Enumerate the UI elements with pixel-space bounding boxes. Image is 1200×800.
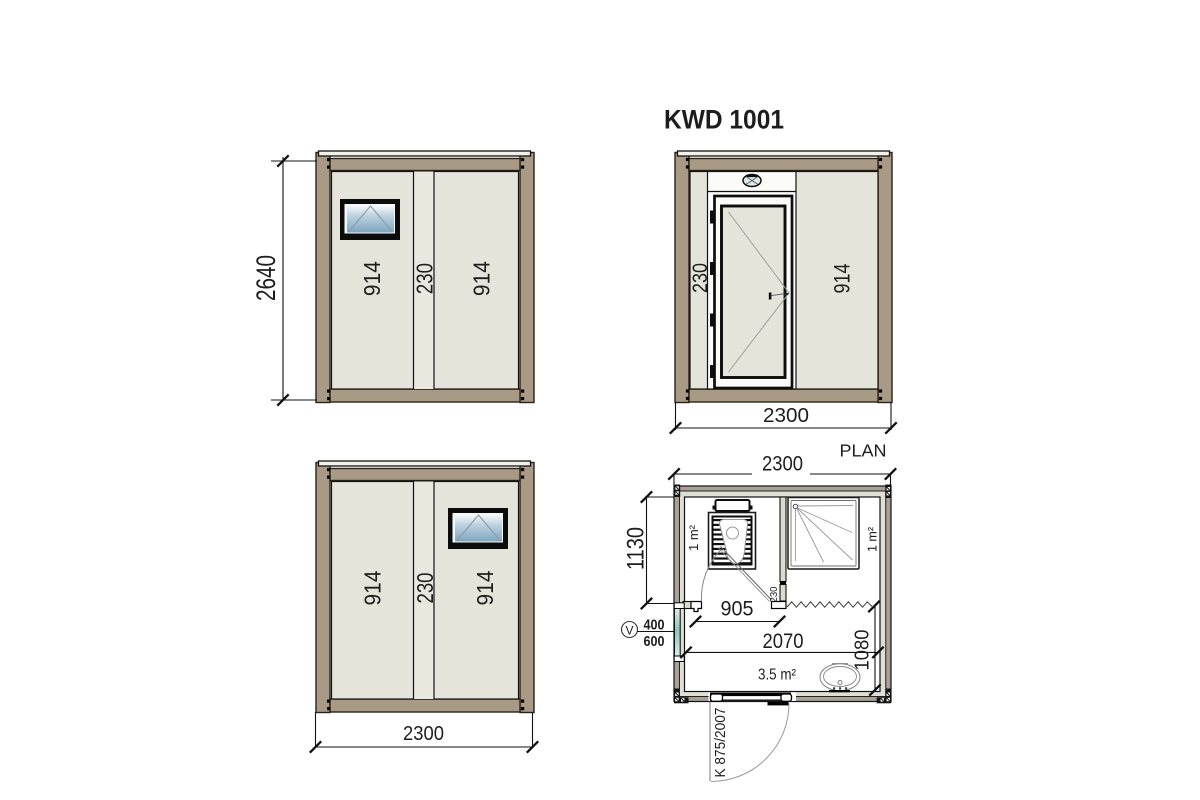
svg-text:230: 230 bbox=[412, 573, 438, 604]
svg-text:230: 230 bbox=[768, 586, 780, 602]
svg-text:905: 905 bbox=[721, 598, 754, 621]
svg-text:1130: 1130 bbox=[622, 527, 649, 570]
svg-text:V: V bbox=[625, 624, 633, 638]
svg-text:2070: 2070 bbox=[763, 630, 804, 653]
svg-text:K 875/2007: K 875/2007 bbox=[712, 708, 729, 778]
svg-text:2300: 2300 bbox=[762, 453, 803, 476]
svg-text:600: 600 bbox=[644, 633, 665, 650]
svg-text:914: 914 bbox=[359, 261, 385, 296]
svg-text:PLAN: PLAN bbox=[840, 441, 887, 461]
svg-text:2300: 2300 bbox=[763, 404, 809, 427]
svg-text:2640: 2640 bbox=[251, 255, 281, 301]
svg-text:914: 914 bbox=[469, 261, 495, 296]
svg-text:400: 400 bbox=[644, 617, 665, 634]
svg-text:KWD 1001: KWD 1001 bbox=[664, 105, 784, 135]
svg-text:1080: 1080 bbox=[851, 630, 874, 671]
svg-text:3.5 m²: 3.5 m² bbox=[758, 667, 796, 684]
svg-text:1 m²: 1 m² bbox=[686, 524, 701, 551]
svg-text:230: 230 bbox=[412, 263, 438, 294]
svg-text:914: 914 bbox=[830, 264, 855, 294]
svg-text:230: 230 bbox=[689, 263, 712, 293]
svg-text:914: 914 bbox=[360, 570, 386, 605]
svg-text:2300: 2300 bbox=[403, 722, 444, 745]
svg-text:1 m²: 1 m² bbox=[865, 526, 880, 552]
svg-text:914: 914 bbox=[472, 570, 498, 605]
